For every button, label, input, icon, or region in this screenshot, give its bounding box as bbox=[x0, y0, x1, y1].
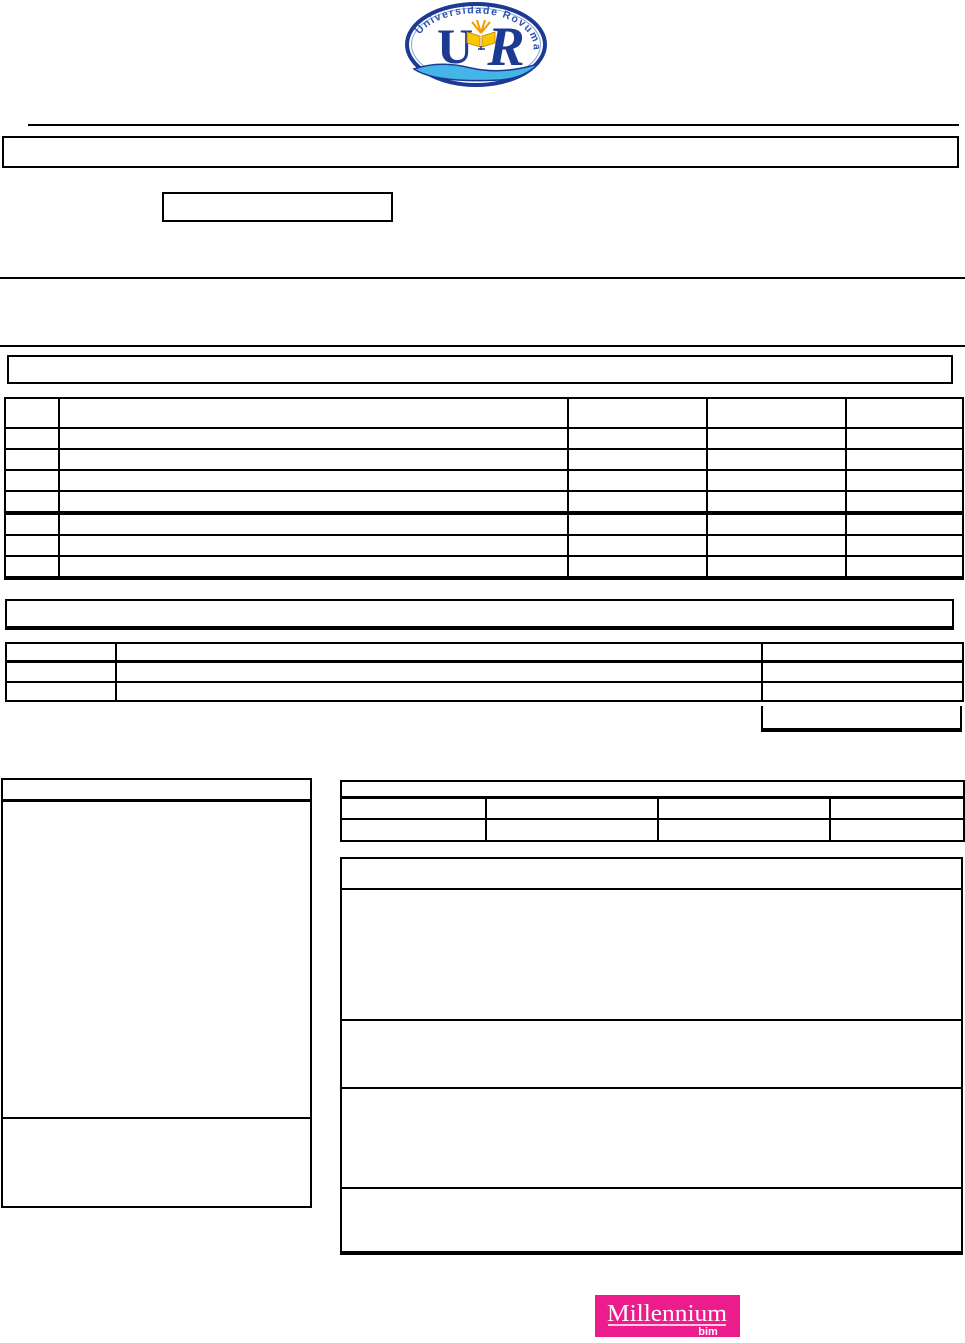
table-row bbox=[341, 819, 964, 841]
cell bbox=[568, 470, 707, 491]
cell bbox=[116, 662, 762, 683]
cell bbox=[762, 643, 963, 662]
left-panel-footer bbox=[3, 1119, 310, 1205]
bim-logo-brand-text: Millennium bbox=[607, 1301, 727, 1327]
cell bbox=[5, 556, 59, 578]
cell bbox=[846, 428, 963, 449]
table-row bbox=[5, 470, 963, 491]
cell bbox=[568, 535, 707, 556]
totals-table bbox=[5, 642, 964, 702]
cell bbox=[341, 781, 964, 798]
cell bbox=[707, 470, 846, 491]
cell bbox=[568, 491, 707, 513]
cell bbox=[846, 449, 963, 470]
cell bbox=[116, 643, 762, 662]
cell bbox=[846, 513, 963, 535]
small-field-box bbox=[162, 192, 393, 222]
cell bbox=[846, 470, 963, 491]
table-row bbox=[341, 858, 962, 889]
cell bbox=[707, 449, 846, 470]
cell bbox=[5, 470, 59, 491]
table-row bbox=[5, 428, 963, 449]
blank-form-page: Universidade Rovuma U R bbox=[0, 0, 965, 1343]
cell bbox=[846, 398, 963, 428]
cell bbox=[341, 798, 486, 820]
subsection-header-box bbox=[5, 599, 954, 630]
cell bbox=[762, 662, 963, 683]
cell bbox=[59, 513, 568, 535]
cell bbox=[6, 643, 116, 662]
table-row bbox=[5, 449, 963, 470]
table-row bbox=[5, 491, 963, 513]
cell bbox=[59, 491, 568, 513]
cell bbox=[830, 798, 964, 820]
section-header-box bbox=[7, 355, 953, 384]
cell bbox=[707, 556, 846, 578]
cell bbox=[341, 858, 962, 889]
section-rule-bottom bbox=[0, 345, 965, 347]
cell bbox=[5, 428, 59, 449]
cell bbox=[59, 556, 568, 578]
cell bbox=[59, 535, 568, 556]
university-logo-emblem: Universidade Rovuma U R bbox=[405, 2, 547, 87]
cell bbox=[830, 819, 964, 841]
instructions-table bbox=[340, 857, 963, 1255]
cell bbox=[341, 889, 962, 1020]
validation-table bbox=[340, 780, 965, 842]
cell bbox=[846, 491, 963, 513]
header-rule bbox=[28, 124, 959, 126]
cell bbox=[341, 1188, 962, 1253]
form-title-box bbox=[2, 136, 959, 168]
cell bbox=[846, 556, 963, 578]
cell bbox=[568, 556, 707, 578]
cell bbox=[658, 798, 830, 820]
cell bbox=[486, 798, 658, 820]
cell bbox=[59, 398, 568, 428]
cell bbox=[707, 398, 846, 428]
cell bbox=[59, 428, 568, 449]
cell bbox=[116, 682, 762, 701]
table-row bbox=[6, 662, 963, 683]
cell bbox=[59, 470, 568, 491]
cell bbox=[5, 398, 59, 428]
bim-logo-sub-brand-text: bim bbox=[698, 1326, 718, 1337]
cell bbox=[341, 1020, 962, 1088]
cell bbox=[707, 535, 846, 556]
totals-overhang-cell bbox=[761, 706, 962, 732]
table-row bbox=[341, 798, 964, 820]
cell bbox=[341, 1088, 962, 1188]
cell bbox=[5, 449, 59, 470]
table-row bbox=[341, 1188, 962, 1253]
cell bbox=[568, 513, 707, 535]
table-row bbox=[341, 1020, 962, 1088]
cell bbox=[707, 428, 846, 449]
millennium-bim-logo: Millennium bim bbox=[595, 1295, 740, 1337]
table-row bbox=[341, 781, 964, 798]
cell bbox=[707, 491, 846, 513]
table-row bbox=[5, 513, 963, 535]
cell bbox=[486, 819, 658, 841]
left-notes-panel bbox=[1, 778, 312, 1208]
cell bbox=[568, 398, 707, 428]
table-row bbox=[6, 643, 963, 662]
items-table bbox=[4, 397, 964, 580]
cell bbox=[59, 449, 568, 470]
university-logo: Universidade Rovuma U R bbox=[405, 2, 547, 87]
table-row bbox=[5, 556, 963, 578]
left-panel-header bbox=[3, 780, 310, 802]
table-row bbox=[341, 889, 962, 1020]
cell bbox=[5, 513, 59, 535]
table-row bbox=[5, 535, 963, 556]
millennium-bim-logo-image: Millennium bim bbox=[595, 1295, 740, 1337]
cell bbox=[762, 682, 963, 701]
cell bbox=[341, 819, 486, 841]
table-row bbox=[5, 398, 963, 428]
cell bbox=[5, 491, 59, 513]
table-row bbox=[6, 682, 963, 701]
section-rule-top bbox=[0, 277, 965, 279]
left-panel-body bbox=[3, 802, 310, 1119]
cell bbox=[568, 449, 707, 470]
cell bbox=[6, 682, 116, 701]
cell bbox=[846, 535, 963, 556]
cell bbox=[5, 535, 59, 556]
cell bbox=[6, 662, 116, 683]
cell bbox=[658, 819, 830, 841]
table-row bbox=[341, 1088, 962, 1188]
cell bbox=[568, 428, 707, 449]
cell bbox=[707, 513, 846, 535]
